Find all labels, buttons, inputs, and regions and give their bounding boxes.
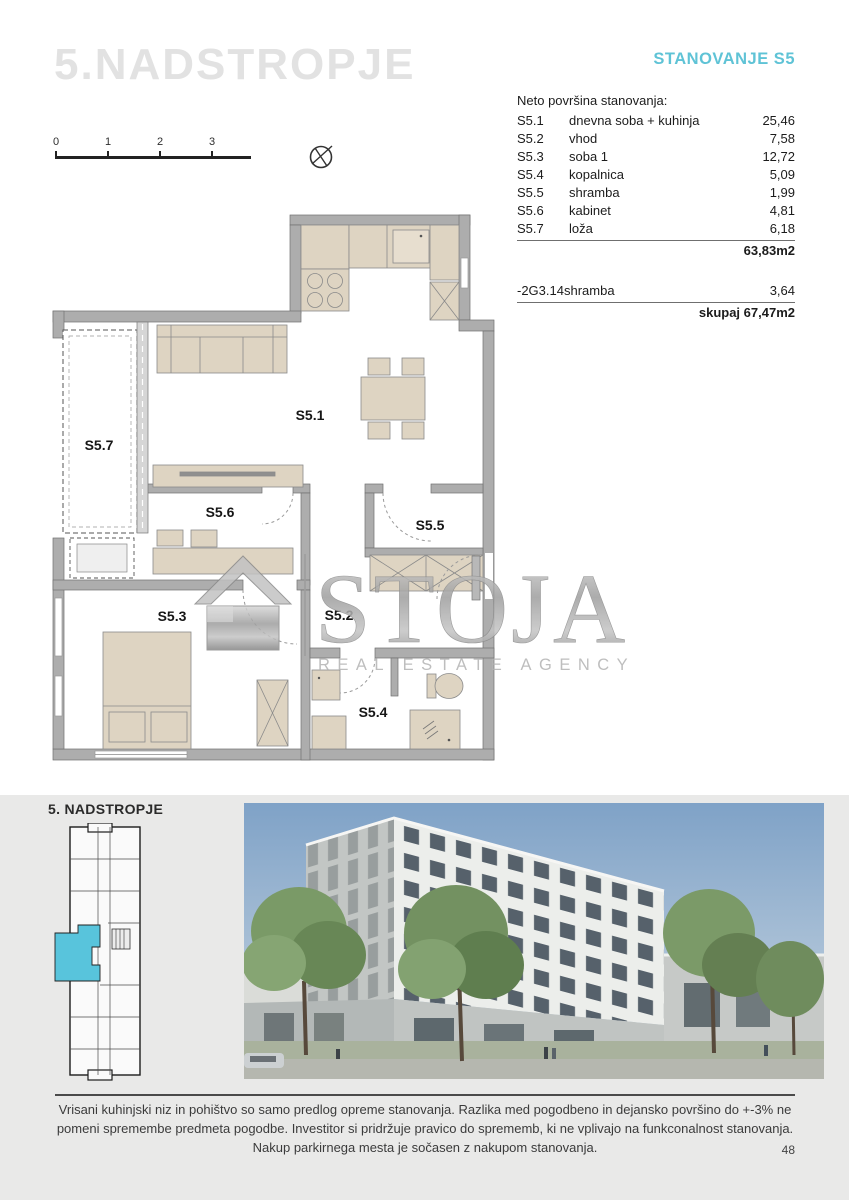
brochure-page: 5.NADSTROPJE STANOVANJE S5 0 1 2 3 Neto … — [0, 0, 849, 1200]
ground — [244, 1041, 824, 1079]
table-row: S5.4 kopalnica 5,09 — [517, 166, 795, 184]
car — [244, 1053, 284, 1068]
area-table-heading: Neto površina stanovanja: — [517, 92, 795, 110]
room-label: S5.7 — [85, 437, 114, 453]
table-row: S5.3 soba 1 12,72 — [517, 148, 795, 166]
total-value: skupaj 67,47m2 — [517, 303, 795, 322]
table-row: S5.2 vhod 7,58 — [517, 130, 795, 148]
bathroom-fixtures — [312, 670, 463, 749]
entry-door-leaf — [472, 556, 480, 600]
building-render — [244, 803, 824, 1079]
area-table: Neto površina stanovanja: S5.1 dnevna so… — [517, 92, 795, 322]
footer-band: 5. NADSTROPJE — [0, 795, 849, 1200]
key-plan: 5. NADSTROPJE — [48, 801, 178, 1085]
bed — [103, 632, 191, 749]
table-row: S5.1 dnevna soba + kuhinja 25,46 — [517, 112, 795, 130]
room-label: S5.6 — [206, 504, 235, 520]
room-label: S5.3 — [158, 608, 187, 624]
room-label: S5.2 — [325, 607, 354, 623]
compass-icon — [307, 142, 335, 170]
dining-table — [361, 358, 425, 439]
apartment-title: STANOVANJE S5 — [653, 50, 795, 69]
scale-tick-label: 0 — [53, 136, 59, 148]
scale-bar: 0 1 2 3 — [55, 136, 295, 166]
hall-wardrobe — [370, 555, 483, 591]
scale-tick-label: 1 — [105, 136, 111, 148]
page-title: 5.NADSTROPJE — [54, 40, 415, 90]
door-swings — [243, 493, 481, 693]
floor-plan: S5.1 S5.7 S5.6 S5.5 S5.3 S5.2 S5.4 — [35, 208, 495, 770]
room-label: S5.1 — [296, 407, 325, 423]
sofa — [157, 325, 287, 373]
key-plan-drawing — [48, 823, 158, 1085]
table-row: S5.5 shramba 1,99 — [517, 184, 795, 202]
key-plan-title: 5. NADSTROPJE — [48, 801, 178, 817]
disclaimer-text: Vrisani kuhinjski niz in pohištvo so sam… — [55, 1101, 795, 1158]
table-row: S5.6 kabinet 4,81 — [517, 202, 795, 220]
tv-cabinet — [153, 465, 303, 487]
room-label: S5.5 — [416, 517, 445, 533]
wardrobe — [257, 680, 288, 746]
stair-core — [112, 929, 130, 949]
deduction-row: -2G3.14 shramba 3,64 — [517, 282, 795, 300]
subtotal-value: 63,83m2 — [517, 241, 795, 260]
room-label: S5.4 — [359, 704, 388, 720]
table-row: S5.7 loža 6,18 — [517, 220, 795, 238]
scale-tick-label: 3 — [209, 136, 215, 148]
desk — [153, 530, 293, 574]
footer-divider — [55, 1094, 795, 1096]
scale-tick-label: 2 — [157, 136, 163, 148]
page-number: 48 — [782, 1143, 795, 1157]
kitchen-counter — [301, 225, 459, 320]
